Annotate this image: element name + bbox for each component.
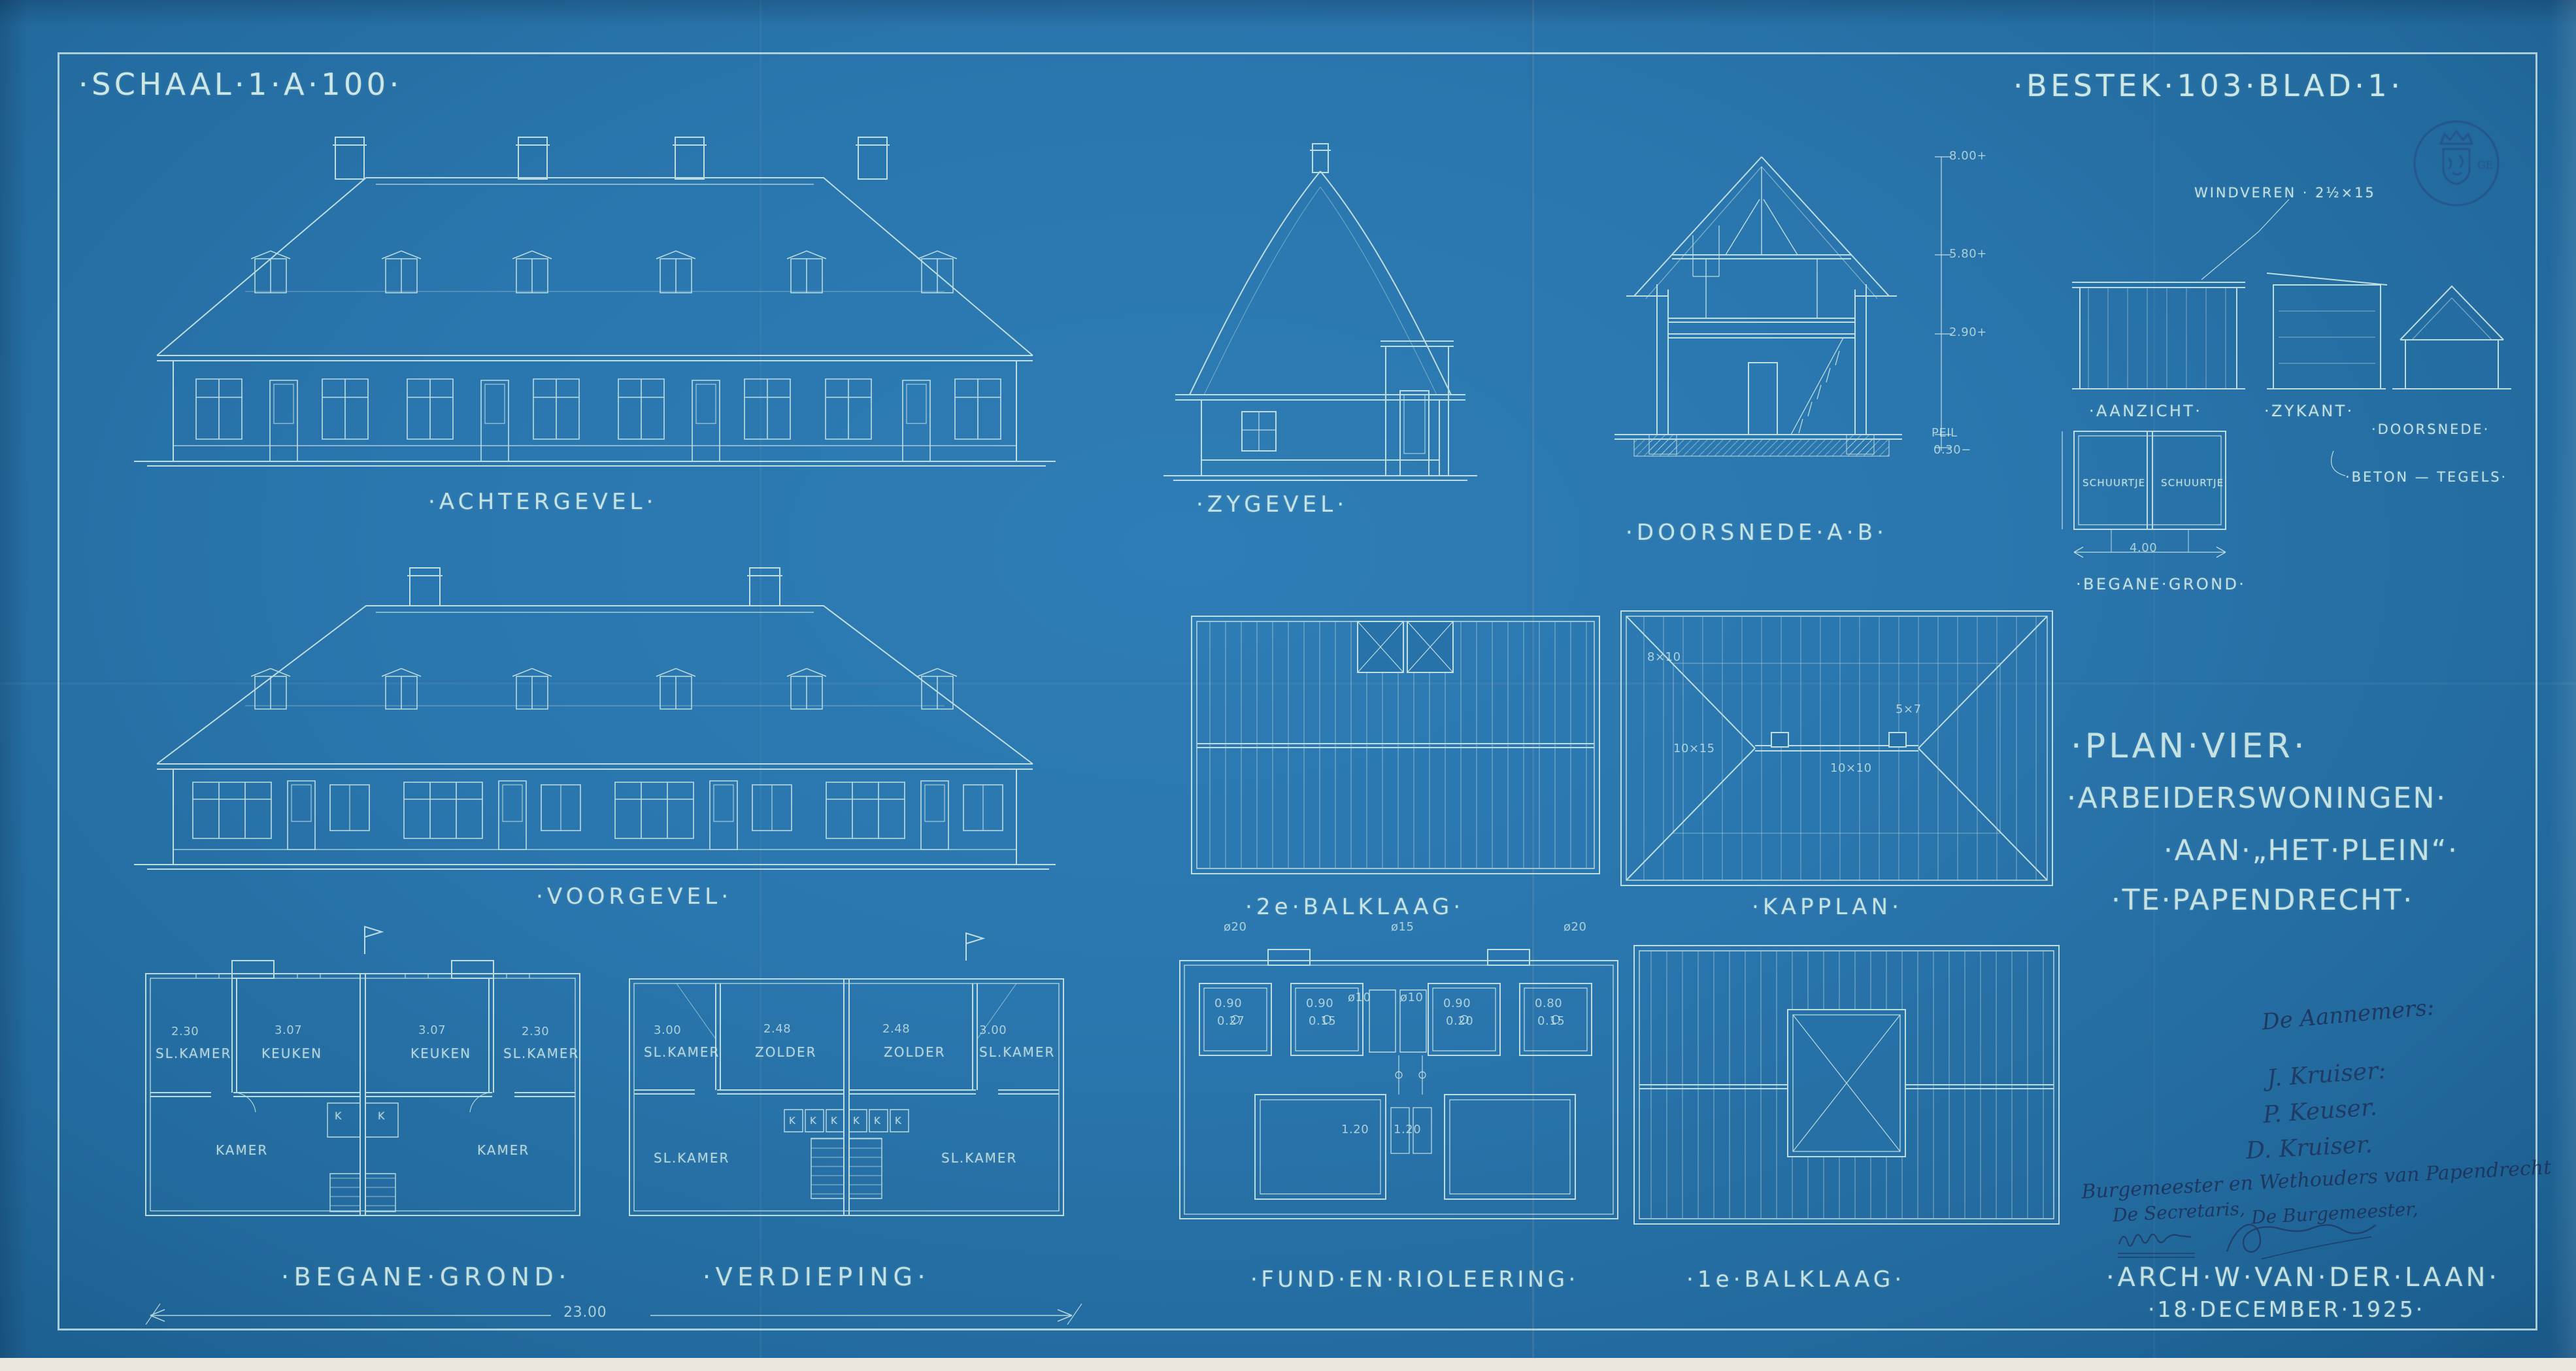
date-line: ·18·DECEMBER·1925· bbox=[2148, 1297, 2425, 1322]
project-title-line: ·PLAN·VIER· bbox=[2071, 727, 2308, 766]
scan-backing bbox=[0, 1358, 2576, 1371]
level-dim: PEIL bbox=[1932, 426, 1958, 440]
burgemeester-signature bbox=[2221, 1210, 2384, 1269]
closet-label: K bbox=[895, 1115, 902, 1127]
architect-credit: ·ARCH·W·VAN·DER·LAAN· bbox=[2106, 1263, 2500, 1293]
room-label: ZOLDER bbox=[755, 1044, 817, 1060]
plan-dim: 2.30 bbox=[522, 1025, 549, 1038]
blueprint-sheet: ·SCHAAL·1·A·100· ·BESTEK·103·BLAD·1· GE bbox=[0, 0, 2576, 1371]
paper-edge bbox=[0, 0, 2576, 26]
kapplan-note: 5×7 bbox=[1896, 702, 1922, 716]
begane-grond-drawing bbox=[134, 954, 592, 1235]
closet-label: K bbox=[853, 1115, 860, 1127]
level-dim: 0.30− bbox=[1933, 443, 1971, 457]
fund-dim: 0.90 bbox=[1306, 997, 1333, 1010]
room-label: SL.KAMER bbox=[941, 1150, 1017, 1166]
plan-dim: 3.00 bbox=[979, 1023, 1007, 1037]
section-flag-icon bbox=[361, 924, 387, 954]
pile-dim: ø20 bbox=[1224, 920, 1247, 934]
plan-dim: 2.48 bbox=[763, 1022, 791, 1036]
kapplan-note: 10×10 bbox=[1830, 761, 1872, 775]
shed-plan-label: ·BEGANE·GROND· bbox=[2076, 575, 2246, 593]
zygevel-drawing bbox=[1163, 124, 1477, 490]
balklaag1-drawing bbox=[1628, 938, 2066, 1232]
room-label: SL.KAMER bbox=[156, 1046, 231, 1061]
closet-label: K bbox=[810, 1115, 817, 1127]
aannemer-signature: P. Keuser. bbox=[2262, 1094, 2378, 1129]
closet-label: K bbox=[831, 1115, 838, 1127]
project-title-line: ·TE·PAPENDRECHT· bbox=[2111, 884, 2414, 917]
plan-dim: 2.48 bbox=[882, 1022, 910, 1036]
voorgevel-label: ·VOORGEVEL· bbox=[536, 884, 732, 910]
level-dim: 8.00+ bbox=[1949, 149, 1987, 163]
level-dim: 2.90+ bbox=[1949, 325, 1987, 339]
room-label: SL.KAMER bbox=[503, 1046, 579, 1061]
balklaag2-drawing bbox=[1186, 611, 1605, 879]
pile-dim: ø15 bbox=[1391, 920, 1414, 934]
shed-room: SCHUURTJE bbox=[2161, 477, 2224, 489]
aannemer-signature: J. Kruiser: bbox=[2266, 1057, 2387, 1093]
closet-label: K bbox=[378, 1110, 386, 1122]
fund-dim: 0.90 bbox=[1214, 997, 1242, 1010]
room-label: SL.KAMER bbox=[979, 1044, 1055, 1060]
kapplan-label: ·KAPPLAN· bbox=[1752, 894, 1903, 920]
fund-dim: 0.90 bbox=[1443, 997, 1471, 1010]
aannemers-heading: De Aannemers: bbox=[2261, 995, 2435, 1036]
aanzicht-label: ·AANZICHT· bbox=[2089, 402, 2202, 420]
plan-dim: 3.07 bbox=[275, 1023, 302, 1037]
aannemer-signature: D. Kruiser. bbox=[2245, 1131, 2373, 1165]
balklaag1-label: ·1e·BALKLAAG· bbox=[1686, 1266, 1905, 1293]
paper-edge bbox=[2550, 0, 2576, 1371]
fund-dim: 0.15 bbox=[1309, 1014, 1336, 1028]
section-flag-icon bbox=[962, 931, 988, 961]
room-label: KAMER bbox=[216, 1142, 268, 1158]
fund-label: ·FUND·EN·RIOLEERING· bbox=[1250, 1266, 1579, 1293]
begane-grond-label: ·BEGANE·GROND· bbox=[281, 1263, 571, 1291]
achtergevel-drawing bbox=[134, 98, 1056, 477]
project-title-line: ·ARBEIDERSWONINGEN· bbox=[2067, 782, 2447, 815]
fund-dim: 0.27 bbox=[1217, 1014, 1245, 1028]
fund-drawing bbox=[1170, 944, 1628, 1232]
paper-edge bbox=[0, 0, 29, 1371]
fund-dim: ø10 bbox=[1400, 991, 1424, 1004]
room-label: ZOLDER bbox=[884, 1044, 946, 1060]
verdieping-label: ·VERDIEPING· bbox=[703, 1263, 930, 1291]
fund-dim: 0.80 bbox=[1535, 997, 1562, 1010]
closet-label: K bbox=[335, 1110, 343, 1122]
fund-dim: 1.20 bbox=[1394, 1123, 1421, 1136]
zykant-label: ·ZYKANT· bbox=[2264, 402, 2354, 420]
room-label: KAMER bbox=[477, 1142, 529, 1158]
project-title-line: ·AAN·„HET·PLEIN“· bbox=[2164, 834, 2459, 867]
doorsnede-label: ·DOORSNEDE·A·B· bbox=[1626, 520, 1888, 546]
scale-title: ·SCHAAL·1·A·100· bbox=[78, 67, 403, 102]
fund-dim: ø10 bbox=[1348, 991, 1371, 1004]
total-dim: 23.00 bbox=[563, 1304, 607, 1321]
closet-label: K bbox=[789, 1115, 796, 1127]
achtergevel-label: ·ACHTERGEVEL· bbox=[428, 489, 658, 515]
windveren-note: WINDVEREN · 2½×15 bbox=[2194, 185, 2376, 201]
bestek-title: ·BESTEK·103·BLAD·1· bbox=[2013, 68, 2403, 103]
secretaris-signature bbox=[2116, 1226, 2215, 1265]
zygevel-label: ·ZYGEVEL· bbox=[1196, 491, 1348, 518]
shed-room: SCHUURTJE bbox=[2083, 477, 2145, 489]
room-label: SL.KAMER bbox=[654, 1150, 729, 1166]
plan-dim: 2.30 bbox=[171, 1025, 199, 1038]
voorgevel-drawing bbox=[134, 552, 1056, 879]
plan-dim: 3.00 bbox=[654, 1023, 681, 1037]
balklaag2-label: ·2e·BALKLAAG· bbox=[1245, 894, 1464, 920]
fund-dim: 0.20 bbox=[1446, 1014, 1473, 1028]
doorsnede-drawing bbox=[1595, 121, 1987, 513]
room-label: KEUKEN bbox=[261, 1046, 322, 1061]
shed-doorsnede-label: ·DOORSNEDE· bbox=[2371, 421, 2490, 437]
pile-dim: ø20 bbox=[1564, 920, 1587, 934]
room-label: SL.KAMER bbox=[644, 1044, 720, 1060]
kapplan-note: 10×15 bbox=[1673, 742, 1715, 755]
kapplan-note: 8×10 bbox=[1647, 650, 1681, 664]
shed-dim: 4.00 bbox=[2130, 541, 2157, 555]
beton-note: ·BETON — TEGELS· bbox=[2345, 469, 2507, 485]
fund-dim: 1.20 bbox=[1341, 1123, 1369, 1136]
fund-dim: 0.15 bbox=[1537, 1014, 1565, 1028]
verdieping-drawing bbox=[618, 961, 1075, 1229]
plan-dim: 3.07 bbox=[418, 1023, 446, 1037]
total-dim-line bbox=[127, 1291, 1108, 1336]
room-label: KEUKEN bbox=[410, 1046, 471, 1061]
level-dim: 5.80+ bbox=[1949, 247, 1987, 261]
closet-label: K bbox=[874, 1115, 881, 1127]
